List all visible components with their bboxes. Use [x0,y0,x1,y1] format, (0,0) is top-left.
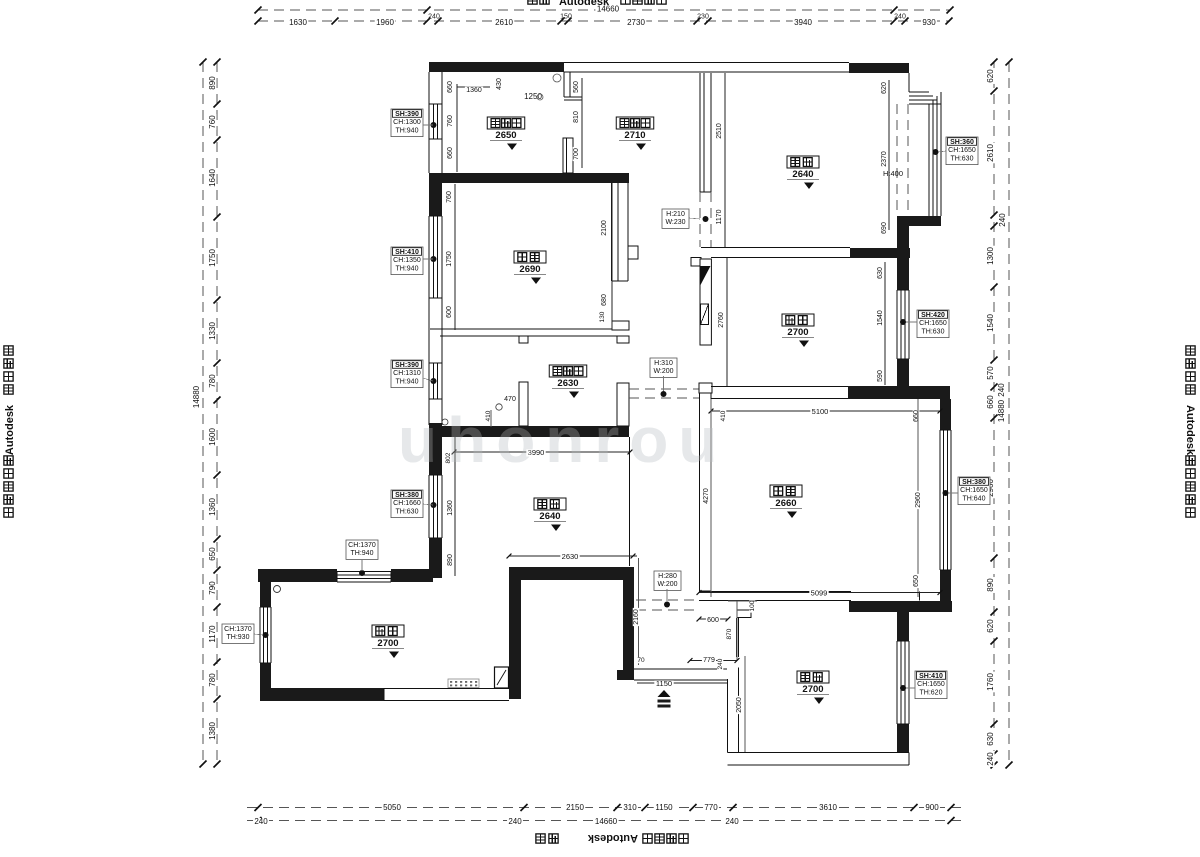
svg-text:Autodesk: Autodesk [4,404,16,455]
svg-text:5099: 5099 [811,589,828,598]
svg-text:560: 560 [573,81,580,93]
svg-text:CH:1350: CH:1350 [393,257,421,264]
svg-text:TH:940: TH:940 [396,265,419,272]
svg-text:2640: 2640 [539,511,560,522]
svg-text:650: 650 [208,547,217,561]
svg-text:590: 590 [877,370,884,382]
svg-text:H:400: H:400 [883,169,903,178]
svg-text:660: 660 [913,410,920,422]
svg-text:2510: 2510 [716,123,723,139]
svg-text:810: 810 [573,111,580,123]
svg-text:1360: 1360 [447,500,454,516]
svg-text:620: 620 [986,69,995,83]
svg-text:1150: 1150 [656,679,672,688]
svg-text:5100: 5100 [812,407,829,416]
svg-text:890: 890 [208,76,217,90]
svg-text:1630: 1630 [289,18,307,27]
svg-text:870: 870 [726,628,733,639]
svg-text:2690: 2690 [519,264,540,275]
svg-text:760: 760 [446,191,453,203]
svg-text:2700: 2700 [787,327,808,338]
svg-text:2660: 2660 [775,498,796,509]
svg-text:470: 470 [504,396,516,403]
svg-text:240: 240 [254,817,268,826]
svg-text:2960: 2960 [915,492,922,508]
svg-text:TH:930: TH:930 [227,634,250,641]
svg-text:1170: 1170 [208,625,217,643]
svg-text:240: 240 [986,752,995,766]
svg-text:Autodesk: Autodesk [1184,405,1196,456]
svg-text:TH:620: TH:620 [920,689,943,696]
svg-text:240: 240 [894,14,906,21]
svg-text:1750: 1750 [446,251,453,267]
svg-text:760: 760 [447,115,454,127]
svg-text:1540: 1540 [986,314,995,332]
svg-text:TH:630: TH:630 [396,508,419,515]
svg-text:620: 620 [986,619,995,633]
svg-text:TH:940: TH:940 [396,378,419,385]
svg-text:TH:630: TH:630 [922,328,945,335]
svg-text:760: 760 [208,115,217,129]
svg-text:2700: 2700 [802,684,823,695]
svg-text:CH:1300: CH:1300 [393,119,421,126]
svg-text:14880: 14880 [192,385,201,408]
svg-text:14660: 14660 [597,5,620,14]
svg-text:570: 570 [986,366,995,380]
svg-text:Autodesk: Autodesk [587,832,638,844]
svg-text:TH:630: TH:630 [951,155,974,162]
svg-text:H:210: H:210 [666,211,685,218]
svg-text:240: 240 [428,14,440,21]
svg-text:240: 240 [717,658,724,669]
svg-text:780: 780 [208,374,217,388]
svg-text:TH:940: TH:940 [351,550,374,557]
svg-text:1150: 1150 [655,803,673,812]
svg-text:130: 130 [599,311,606,322]
svg-text:660: 660 [447,81,454,93]
svg-text:1330: 1330 [208,322,217,340]
svg-text:CH:1650: CH:1650 [917,681,945,688]
svg-text:2650: 2650 [495,130,516,141]
svg-text:SH:380: SH:380 [395,492,419,499]
svg-text:CH:1660: CH:1660 [393,500,421,507]
svg-text:240: 240 [998,213,1007,227]
svg-text:70: 70 [637,657,645,664]
svg-text:SH:360: SH:360 [950,139,974,146]
svg-text:660: 660 [447,147,454,159]
svg-text:CH:1650: CH:1650 [960,487,988,494]
svg-text:1600: 1600 [208,428,217,446]
svg-text:630: 630 [877,267,884,279]
svg-text:770: 770 [704,803,718,812]
svg-text:690: 690 [881,222,888,234]
svg-text:780: 780 [208,673,217,687]
svg-text:240: 240 [725,817,739,826]
svg-text:TH:940: TH:940 [396,127,419,134]
svg-text:CH:1310: CH:1310 [393,370,421,377]
svg-text:890: 890 [447,554,454,566]
svg-text:1540: 1540 [877,310,884,326]
svg-text:2610: 2610 [986,144,995,162]
svg-text:1300: 1300 [986,247,995,265]
svg-text:779: 779 [703,657,715,664]
svg-text:2160: 2160 [633,609,640,625]
svg-text:1380: 1380 [208,722,217,740]
svg-text:2150: 2150 [566,803,584,812]
svg-text:1170: 1170 [716,209,723,224]
svg-text:2730: 2730 [627,18,645,27]
svg-text:2760: 2760 [718,312,725,328]
svg-text:W:200: W:200 [657,581,677,588]
svg-text:2610: 2610 [495,18,513,27]
svg-text:CH:1370: CH:1370 [348,542,376,549]
svg-text:CH:1650: CH:1650 [948,147,976,154]
svg-text:240: 240 [997,383,1006,397]
svg-text:1640: 1640 [208,169,217,187]
svg-text:1360: 1360 [208,498,217,516]
svg-text:CH:1650: CH:1650 [919,320,947,327]
svg-text:H:310: H:310 [654,360,673,367]
svg-text:H:280: H:280 [658,573,677,580]
svg-text:SH:410: SH:410 [395,249,419,256]
svg-text:1360: 1360 [466,87,482,94]
svg-text:630: 630 [986,732,995,746]
svg-text:2050: 2050 [736,697,743,713]
svg-text:SH:390: SH:390 [395,362,419,369]
svg-text:CH:1370: CH:1370 [224,626,252,633]
svg-text:2700: 2700 [377,638,398,649]
svg-text:5050: 5050 [383,803,401,812]
svg-text:600: 600 [707,617,719,624]
svg-text:1760: 1760 [986,673,995,691]
svg-text:TH:640: TH:640 [963,495,986,502]
svg-text:2710: 2710 [624,130,645,141]
svg-text:14880: 14880 [997,399,1006,422]
svg-text:2630: 2630 [562,552,579,561]
svg-text:2370: 2370 [881,151,888,167]
svg-text:890: 890 [986,578,995,592]
svg-text:680: 680 [601,294,608,306]
svg-text:900: 900 [925,803,939,812]
svg-text:310: 310 [623,803,637,812]
svg-text:2640: 2640 [792,169,813,180]
svg-text:W:200: W:200 [653,368,673,375]
svg-text:14660: 14660 [595,817,618,826]
svg-text:1750: 1750 [208,249,217,267]
svg-text:930: 930 [922,18,936,27]
svg-text:650: 650 [913,575,920,587]
svg-text:700: 700 [573,148,580,160]
svg-text:2100: 2100 [601,220,608,236]
svg-text:790: 790 [208,581,217,595]
svg-text:240: 240 [508,817,522,826]
svg-text:SH:380: SH:380 [962,479,986,486]
svg-text:620: 620 [881,82,888,94]
svg-text:660: 660 [986,395,995,409]
svg-text:3610: 3610 [819,803,837,812]
svg-text:4270: 4270 [703,488,710,504]
svg-text:430: 430 [496,78,503,90]
svg-text:W:230: W:230 [665,219,685,226]
svg-text:SH:410: SH:410 [919,673,943,680]
svg-text:150: 150 [560,14,572,21]
svg-text:SH:420: SH:420 [921,312,945,319]
svg-text:2630: 2630 [557,378,578,389]
svg-text:600: 600 [446,306,453,318]
svg-text:230: 230 [697,14,709,21]
svg-text:1960: 1960 [376,18,394,27]
svg-text:100: 100 [749,600,756,611]
svg-text:SH:390: SH:390 [395,111,419,118]
svg-text:3940: 3940 [794,18,812,27]
